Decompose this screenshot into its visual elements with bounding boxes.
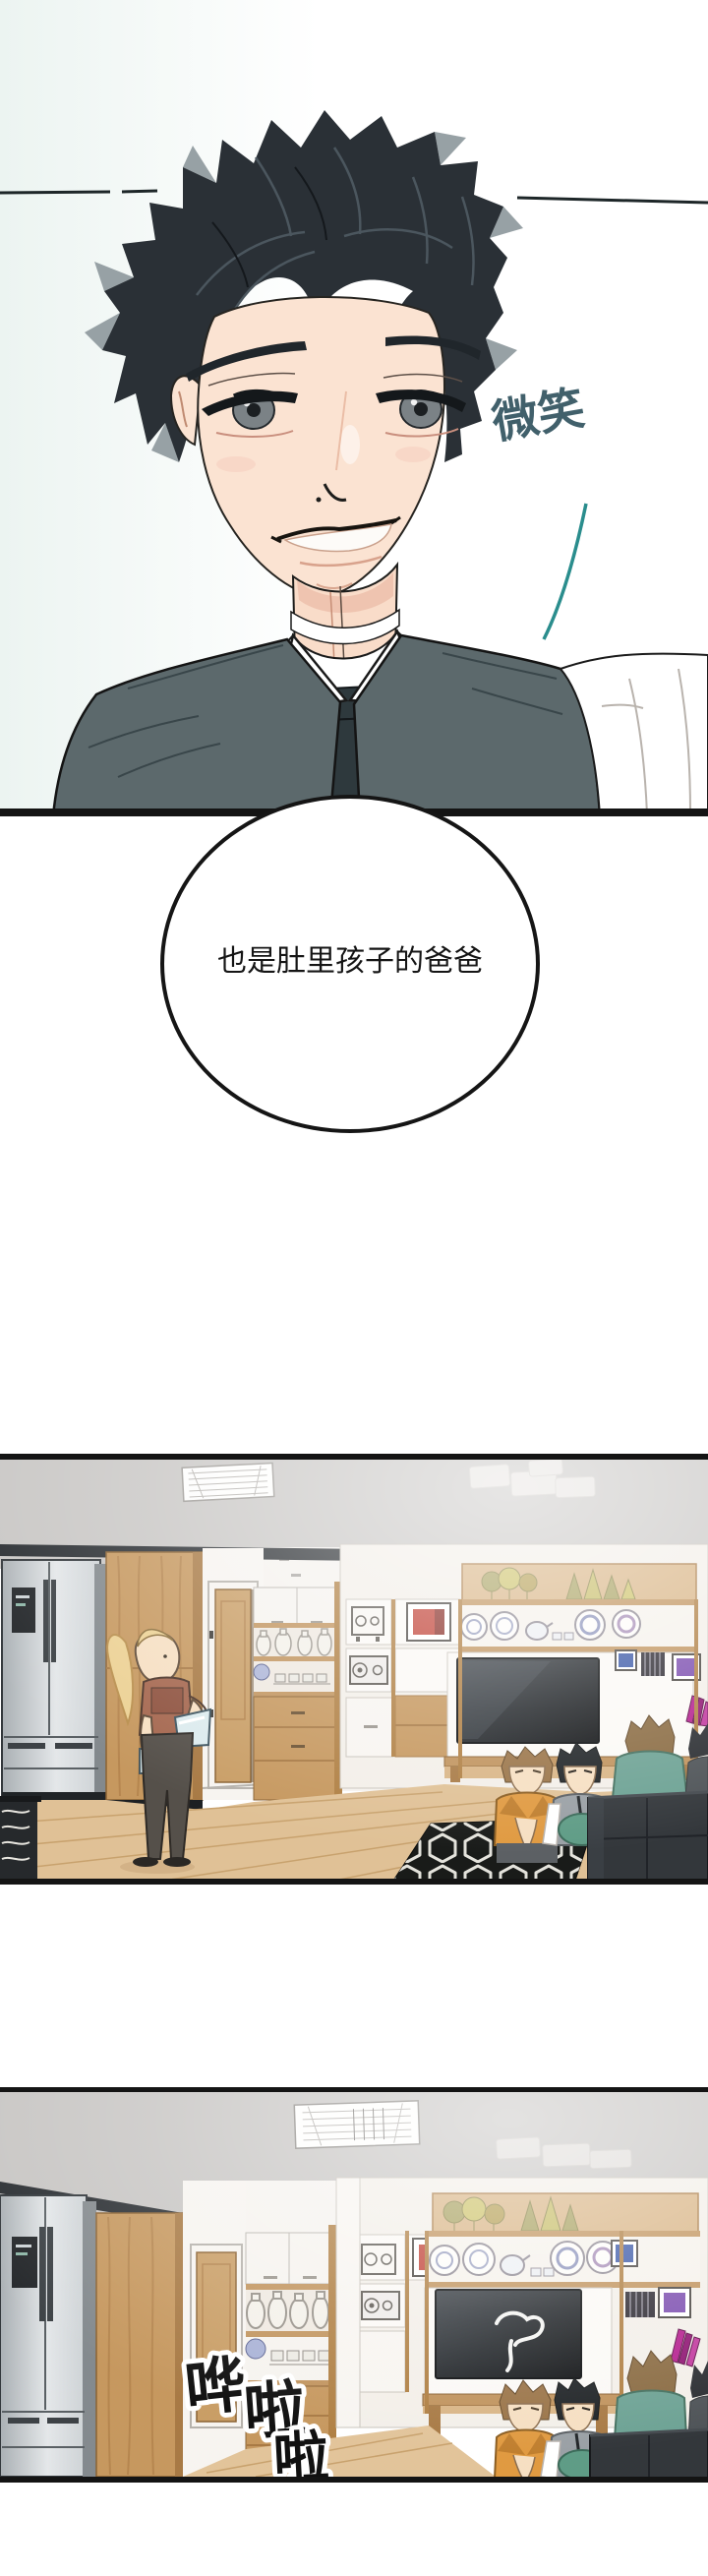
panel-3-livingroom-close: 哗 啦 啦 (0, 2087, 708, 2483)
speech-bubble: 也是肚里孩子的爸爸 (160, 795, 540, 1133)
livingroom-wide-scene (0, 1454, 708, 1885)
panel-1-portrait: 微笑 (0, 0, 708, 816)
livingroom-close-scene: 哗 啦 啦 (0, 2087, 708, 2483)
right-cheek-blush (395, 447, 431, 462)
panel2-top-border (0, 1454, 708, 1460)
light-wash-overlay (0, 1454, 708, 1885)
panel3-top-border (0, 2087, 708, 2092)
panel2-bottom-border (0, 1879, 708, 1885)
left-cheek-blush (216, 456, 256, 472)
panel-2-livingroom-wide (0, 1454, 708, 1885)
webtoon-page: 微笑 (0, 0, 708, 2576)
portrait-scene: 微笑 (0, 0, 708, 816)
light-wash-overlay (0, 2087, 708, 2483)
panel3-bottom-border (0, 2477, 708, 2483)
speech-bubble-text: 也是肚里孩子的爸爸 (217, 936, 483, 980)
